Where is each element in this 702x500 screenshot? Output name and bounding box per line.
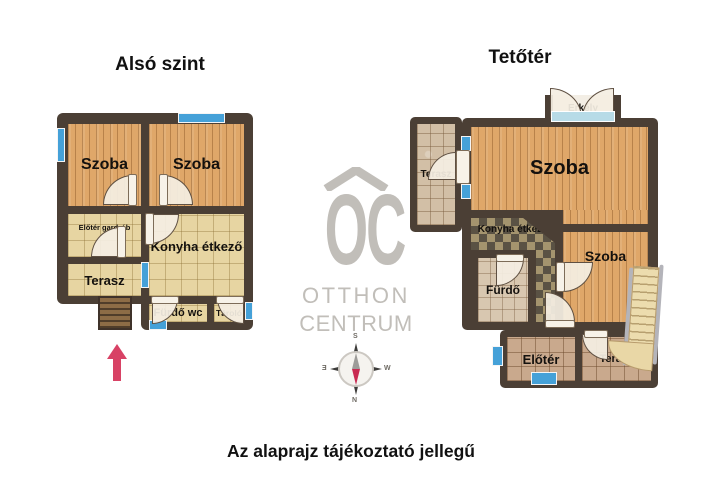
room-label: Szoba — [81, 156, 128, 174]
compass-north-label: N — [352, 397, 357, 404]
room-label: Szoba — [173, 156, 220, 174]
window — [531, 372, 557, 385]
door-leaf — [216, 296, 244, 304]
room-label: Terasz — [84, 273, 124, 288]
floorplan-image: Alsó szint Tetőtér Szoba Szoba Előtér ga… — [0, 0, 702, 500]
compass-east-label: E — [322, 365, 327, 372]
stairs-icon — [98, 296, 132, 330]
room-terasz: Terasz — [68, 264, 141, 296]
window — [141, 262, 149, 288]
door-leaf — [496, 254, 524, 262]
title-lower-level: Alsó szint — [90, 54, 230, 76]
balcony-glass — [551, 111, 615, 122]
door-leaf — [117, 226, 126, 258]
room-label: Konyha étkező — [151, 239, 243, 272]
door-leaf — [145, 213, 154, 245]
compass-south-label: S — [353, 333, 358, 340]
external-stairs-icon — [604, 258, 667, 374]
compass-icon — [328, 341, 384, 397]
door-leaf — [128, 174, 137, 206]
window — [461, 136, 471, 151]
door-leaf — [545, 320, 575, 328]
logo-name-line1: OTTHON — [300, 283, 412, 309]
door-leaf — [456, 150, 470, 184]
compass-rose: S E W N — [322, 333, 390, 405]
logo-monogram: OC — [325, 190, 388, 270]
door-leaf — [151, 296, 179, 304]
window — [57, 128, 65, 162]
disclaimer-text: Az alaprajz tájékoztató jellegű — [0, 441, 702, 462]
room-label: Szoba — [530, 157, 589, 180]
room-szoba-nagy-ext — [563, 210, 648, 224]
compass-west-label: W — [384, 365, 391, 372]
door-leaf — [159, 174, 168, 206]
door-leaf — [584, 330, 608, 338]
room-label: Előtér — [523, 352, 560, 367]
window — [492, 346, 503, 366]
floor-plan-lower-level: Szoba Szoba Előtér gardrób Konyha étkező… — [57, 113, 253, 330]
window — [245, 302, 253, 320]
window — [461, 184, 471, 199]
door-leaf — [556, 262, 565, 292]
title-attic: Tetőtér — [450, 47, 590, 69]
entrance-arrow-icon — [107, 344, 127, 382]
window — [178, 113, 225, 123]
room-szoba-nagy: Szoba — [471, 127, 648, 210]
floor-plan-attic: Erkély Terasz Szoba Konyha étkező Szoba … — [410, 85, 665, 388]
